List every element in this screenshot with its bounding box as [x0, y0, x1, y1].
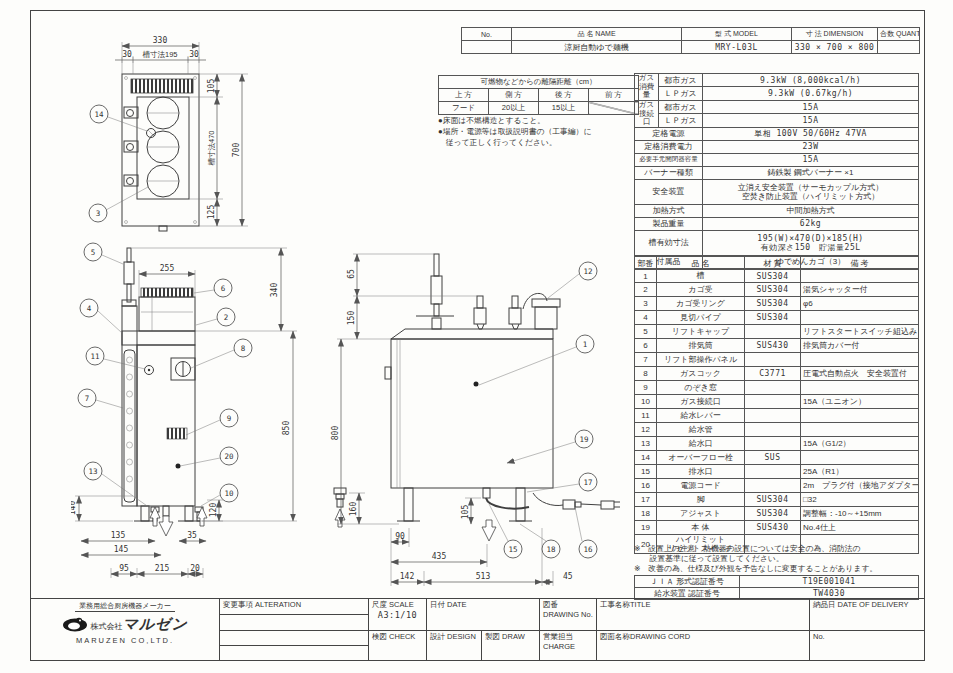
table-cell: 給水管: [657, 423, 745, 437]
parts-table: 部番 品 名 材 質 備 考 1槽SUS3042カゴ受SUS304湯気シャッター…: [634, 256, 919, 554]
svg-text:11: 11: [90, 352, 99, 361]
spec-gas-connection-label: ガス 接続口: [635, 100, 659, 127]
table-cell: オーバーフロー栓: [657, 451, 745, 465]
footnote-1: ※ 設置上の注意 熱機器の設置については安全の為、消防法の: [634, 544, 922, 554]
quantity-value: [878, 41, 920, 54]
header-model-label: 型 式 MODEL: [682, 28, 792, 41]
charge-label: 営業担当CHARGE: [543, 632, 575, 651]
clearance-val-rear: 15以上: [539, 102, 589, 115]
vent-grille: [131, 79, 193, 93]
table-row: 3カゴ受リングSUS304φ6: [635, 297, 919, 311]
drawing-cord-cell: 図面名称DRAWING CORD: [596, 630, 809, 661]
drawing-sheet-canvas: No. 品 名 NAME 型 式 MODEL 寸 法 DIMENSION 合数 …: [0, 0, 953, 673]
table-cell: ガスコック: [657, 367, 745, 381]
table-cell: φ6: [801, 297, 919, 311]
table-row: 19本 体SUS430No.4仕上: [635, 521, 919, 535]
company-tagline: 業務用総合厨房機器メーカー: [75, 600, 174, 612]
table-row: 6排気筒SUS430排気筒カバー付: [635, 339, 919, 353]
svg-text:12: 12: [583, 267, 592, 276]
dim-label: 95: [119, 564, 129, 573]
table-cell: [745, 409, 801, 423]
lift-control-panel: [124, 350, 135, 502]
balloon-17: 17: [527, 473, 597, 492]
dim-label: 513: [476, 572, 491, 581]
svg-text:7: 7: [85, 394, 90, 403]
dim-label: 105: [207, 79, 216, 94]
draw-label: 製図 DRAW: [485, 632, 525, 641]
table-cell: 脚: [657, 493, 745, 507]
lift-cap: [124, 262, 134, 284]
dim-label: 30: [189, 50, 199, 59]
table-row: 2カゴ受SUS304湯気シャッター付: [635, 283, 919, 297]
table-cell: 排水口: [657, 465, 745, 479]
jia-cert-number: T19E001041: [740, 576, 919, 588]
spec-lp-gas-label: ＬＰガス: [659, 87, 703, 100]
no-cell: No.: [809, 630, 924, 661]
parts-col-remark: 備 考: [801, 257, 919, 270]
sight-vent: [167, 428, 187, 439]
spec-power-consumption-value: 23W: [703, 140, 919, 153]
table-cell: SUS304: [745, 507, 801, 521]
svg-text:1: 1: [583, 340, 588, 349]
side-dimensions: 65 150 800 160 105 90 435 142 513 45: [331, 254, 573, 586]
faucet-1: [474, 296, 486, 329]
header-quantity-label: 合数 QUANTITY: [878, 28, 920, 41]
table-cell: [745, 465, 801, 479]
spec-power-value: 単相 100V 50/60Hz 47VA: [703, 127, 919, 140]
dim-label: 45: [563, 572, 573, 581]
date-label: 日付 DATE: [430, 600, 467, 609]
spec-weight-value: 62kg: [703, 217, 919, 230]
gas-arrow: [197, 507, 207, 526]
scale-label: 尺度 SCALE: [372, 600, 423, 610]
dim-label: 20: [190, 564, 200, 573]
table-cell: 給水レバー: [657, 409, 745, 423]
basket-handle-2: [124, 141, 138, 152]
clearance-table: 可燃物などからの離隔距離（cm） 上 方 側 方 後 方 前 方 フード 20以…: [438, 75, 639, 115]
header-dimension-label: 寸 法 DIMENSION: [792, 28, 878, 41]
no-label: No.: [813, 632, 825, 641]
cabinet-side: [391, 339, 553, 488]
spec-gas-city-value: 9.3kW (8,000kcal/h): [703, 74, 919, 87]
clearance-note-2: ●場所・電源等は取扱説明書の（工事編）に: [438, 126, 638, 137]
dim-label: 105: [461, 505, 470, 520]
table-cell: 15A（G1/2）: [801, 437, 919, 451]
basket-handle-1: [124, 107, 138, 118]
table-cell: □32: [801, 493, 919, 507]
counter-bevel: [391, 329, 553, 339]
table-row: 15排水口25A（R1）: [635, 465, 919, 479]
clearance-col-rear: 後 方: [539, 89, 589, 102]
spec-conn-city-label: 都市ガス: [659, 100, 703, 113]
counter-band: [122, 331, 195, 345]
table-cell: リフト部操作パネル: [657, 353, 745, 367]
table-cell: [745, 395, 801, 409]
draw-cell: 製図 DRAW: [481, 630, 539, 661]
drain-stub: [159, 226, 167, 231]
balloon-20: 20: [180, 447, 238, 466]
title-block: 業務用総合厨房機器メーカー 株式会社マルゼン MARUZEN CO,LTD. 変…: [31, 598, 924, 661]
tank-point: [474, 382, 479, 387]
table-row: 16電源コード2m プラグ付（接地アダプター付）: [635, 479, 919, 493]
spec-heating-label: 加熱方式: [635, 204, 703, 217]
upper-tank: [139, 297, 195, 331]
table-cell: 排気筒: [657, 339, 745, 353]
spec-conn-city-value: 15A: [703, 100, 919, 113]
alteration-label: 変更事項 ALTERATION: [223, 600, 301, 609]
table-cell: [745, 423, 801, 437]
company-prefix: 株式会社: [90, 622, 122, 631]
table-row: 12給水管: [635, 423, 919, 437]
table-row: 7リフト部操作パネル: [635, 353, 919, 367]
header-no-value: [462, 41, 512, 54]
svg-text:14: 14: [94, 110, 104, 119]
table-cell: [801, 270, 919, 283]
balloon-13: 13: [84, 462, 150, 508]
plan-view: 330 30 槽寸法195 30 105 槽寸法470 125 700 14 3: [71, 26, 271, 236]
dim-label: 435: [432, 552, 447, 561]
table-row: 17脚SUS304□32: [635, 493, 919, 507]
dim-label: 35: [187, 531, 197, 540]
parts-rows: 1槽SUS3042カゴ受SUS304湯気シャッター付3カゴ受リングSUS304φ…: [635, 270, 919, 554]
basket-receiver-comb: [141, 288, 193, 297]
spec-city-gas-label: 都市ガス: [659, 74, 703, 87]
table-cell: 給水口: [657, 437, 745, 451]
overflow-standpipe: [416, 254, 454, 329]
svg-text:13: 13: [88, 467, 97, 476]
gas-cock-knob: [171, 358, 195, 380]
tank-outline: [137, 97, 189, 199]
dim-label: 850: [282, 421, 291, 436]
maruzen-penguin-logo: [62, 616, 88, 632]
dim-label: 340: [270, 283, 279, 298]
outer-dimension: 330 × 700 × 800: [792, 41, 878, 54]
table-cell: SUS430: [745, 339, 801, 353]
table-cell: ガス接続口: [657, 395, 745, 409]
dim-label: 330: [153, 36, 168, 45]
table-cell: のぞき窓: [657, 381, 745, 395]
spec-weight-label: 製品重量: [635, 217, 703, 230]
table-cell: 湯気シャッター付: [801, 283, 919, 297]
svg-text:5: 5: [91, 248, 96, 257]
table-cell: 電源コード: [657, 479, 745, 493]
header-no-label: No.: [462, 28, 512, 41]
svg-text:9: 9: [227, 414, 232, 423]
side-view: 65 150 800 160 105 90 435 142 513 45: [301, 241, 646, 591]
company-brand: マルゼン: [122, 615, 187, 632]
plan-body: [122, 74, 199, 231]
table-cell: 排気筒カバー付: [801, 339, 919, 353]
table-cell: No.4仕上: [801, 521, 919, 535]
table-row: 4見切パイプSUS304: [635, 311, 919, 325]
svg-text:4: 4: [87, 304, 92, 313]
spec-safety-value: 立消え安全装置（サーモカップル方式） 空焚き防止装置（ハイリミット方式）: [703, 179, 919, 204]
power-cord: [533, 493, 620, 509]
front-view: 255 340 850 140 120 135 145 35 95 215: [71, 238, 306, 588]
table-cell: [745, 381, 801, 395]
project-title-cell: 工事名称TITLE: [596, 599, 809, 630]
svg-text:17: 17: [583, 478, 592, 487]
drain-pipe: [163, 506, 169, 516]
svg-text:8: 8: [241, 344, 246, 353]
table-cell: 15A（ユニオン）: [801, 395, 919, 409]
dim-label: 30: [122, 50, 132, 59]
clearance-col-top: 上 方: [439, 89, 489, 102]
table-cell: 25A（R1）: [801, 465, 919, 479]
spec-tank-value: 195(W)×470(D)×185(H) 有効深さ150 貯湯量25L: [703, 230, 919, 255]
panel-point: [176, 464, 181, 469]
table-row: 8ガスコックC3771圧電式自動点火 安全装置付: [635, 367, 919, 381]
svg-text:3: 3: [96, 209, 101, 218]
table-cell: [801, 381, 919, 395]
basket-handle-3: [124, 175, 138, 186]
table-cell: [745, 437, 801, 451]
installation-notes: ※ 設置上の注意 熱機器の設置については安全の為、消防法の 設置基準に従って設置…: [634, 544, 922, 574]
spec-heating-value: 中間加熱方式: [703, 204, 919, 217]
dim-label: 125: [207, 205, 216, 220]
company-name-en: MARUZEN CO,LTD.: [34, 636, 216, 645]
dim-label: 135: [111, 531, 126, 540]
dim-label: 145: [114, 545, 129, 554]
balloon-6: 6: [194, 279, 232, 297]
front-body: [122, 248, 207, 536]
design-label: 設計 DESIGN: [430, 632, 476, 641]
check-cell: 検図 CHECK: [368, 630, 426, 661]
svg-text:19: 19: [579, 435, 588, 444]
front-tab: [385, 367, 391, 379]
table-cell: リフトスタートスイッチ組込み: [801, 325, 919, 339]
balloon-5: 5: [84, 243, 123, 264]
dim-label: 215: [155, 564, 170, 573]
clearance-note-1: ●床面は不燃構造とすること。: [438, 115, 638, 126]
charge-cell: 営業担当CHARGE: [539, 630, 596, 661]
header-table: No. 品 名 NAME 型 式 MODEL 寸 法 DIMENSION 合数 …: [461, 27, 920, 54]
clearance-val-front: [589, 102, 639, 115]
spec-safety-label: 安全装置: [635, 179, 703, 204]
dim-label: 槽寸法470: [207, 130, 216, 165]
svg-text:10: 10: [224, 489, 234, 498]
table-cell: SUS304: [745, 311, 801, 325]
balloon-1: 1: [479, 335, 594, 385]
table-cell: [745, 325, 801, 339]
balloon-4: 4: [80, 299, 122, 333]
table-row: 5リフトキャップリフトスタートスイッチ組込み: [635, 325, 919, 339]
table-cell: [801, 353, 919, 367]
balloon-12: 12: [548, 262, 597, 298]
table-cell: 本 体: [657, 521, 745, 535]
table-cell: 見切パイプ: [657, 311, 745, 325]
dim-label: 700: [232, 143, 241, 158]
parts-col-material: 材 質: [745, 257, 801, 270]
delivery-cell: 納品日 DATE OF DELIVERY: [809, 599, 924, 630]
table-cell: [801, 451, 919, 465]
spec-burner-label: バーナー種類: [635, 166, 703, 179]
table-cell: アジャスト: [657, 507, 745, 521]
drawing-no-label: 図番 DRAWING No.: [543, 600, 593, 619]
table-cell: [745, 479, 801, 493]
svg-text:2: 2: [224, 313, 229, 322]
scale-cell: 尺度 SCALE A3:1/10: [368, 599, 426, 630]
svg-text:15: 15: [508, 545, 517, 554]
dim-label: 255: [160, 264, 175, 273]
plan-dimensions: 330 30 槽寸法195 30 105 槽寸法470 125 700: [115, 36, 248, 226]
product-name: 涼厨自動ゆで麺機: [512, 41, 682, 54]
spec-power-label: 定格電源: [635, 127, 703, 140]
dim-label: 65: [347, 269, 356, 279]
scale-value: A3:1/10: [372, 610, 423, 620]
balloon-10: 10: [201, 484, 238, 506]
alteration-cell: 変更事項 ALTERATION: [219, 599, 368, 661]
table-cell: 2m プラグ付（接地アダプター付）: [801, 479, 919, 493]
footnote-3: ※ 改善の為、仕様及び外観を予告なしに変更することがあります。: [634, 564, 922, 574]
table-row: 13給水口15A（G1/2）: [635, 437, 919, 451]
table-cell: SUS304: [745, 283, 801, 297]
parts-col-name: 品 名: [657, 257, 745, 270]
jia-cert-label: ＪＩＡ 形式認証番号: [635, 576, 740, 588]
drain-arrow: [159, 516, 173, 536]
clearance-box: 可燃物などからの離隔距離（cm） 上 方 側 方 後 方 前 方 フード 20以…: [438, 75, 638, 148]
date-cell: 日付 DATE: [426, 599, 539, 630]
table-row: 18アジャストSUS304調整幅：-10～+15mm: [635, 507, 919, 521]
spec-gas-consumption-label: ガス 消費量: [635, 74, 659, 101]
table-cell: [801, 311, 919, 325]
spec-table: ガス 消費量 都市ガス 9.3kW (8,000kcal/h) ＬＰガス 9.3…: [634, 73, 919, 269]
drawing-no-cell: 図番 DRAWING No.: [539, 599, 596, 630]
gas-connection-side: [334, 488, 346, 527]
svg-text:18: 18: [546, 545, 556, 554]
dim-label: 槽寸法195: [142, 50, 177, 59]
spec-gas-lp-value: 9.3kW (0.67kg/h): [703, 87, 919, 100]
project-title-label: 工事名称TITLE: [600, 600, 650, 609]
balloon-8: 8: [191, 339, 252, 368]
table-row: 14オーバーフロー栓SUS: [635, 451, 919, 465]
dim-label: 800: [331, 426, 340, 441]
table-row: 9のぞき窓: [635, 381, 919, 395]
header-name-label: 品 名 NAME: [512, 28, 682, 41]
svg-text:20: 20: [224, 452, 234, 461]
spec-breaker-value: 15A: [703, 153, 919, 166]
spec-power-consumption-label: 定格消費電力: [635, 140, 703, 153]
table-cell: C3771: [745, 367, 801, 381]
clearance-col-side: 側 方: [489, 89, 539, 102]
company-name: 株式会社マルゼン: [34, 615, 216, 634]
spec-breaker-label: 必要手元開閉器容量: [635, 153, 703, 166]
footnote-2: 設置基準に従って設置してください。: [634, 554, 922, 564]
svg-text:16: 16: [583, 545, 593, 554]
spec-conn-lp-value: 15A: [703, 114, 919, 127]
table-cell: SUS: [745, 451, 801, 465]
dim-label: 150: [347, 311, 356, 326]
dim-label: 120: [209, 503, 218, 518]
clearance-val-side: 20以上: [489, 102, 539, 115]
clearance-note-3: 従って正しく行ってください。: [438, 137, 638, 148]
table-cell: リフトキャップ: [657, 325, 745, 339]
faucet-2: [509, 296, 521, 329]
spec-burner-value: 鋳鉄製 鋼式バーナー ×1: [703, 166, 919, 179]
clearance-col-front: 前 方: [589, 89, 639, 102]
dim-label: 140: [71, 501, 77, 516]
drain-side: [482, 488, 529, 541]
table-cell: [801, 409, 919, 423]
cabinet: [137, 345, 195, 506]
drawing-sheet-frame: No. 品 名 NAME 型 式 MODEL 寸 法 DIMENSION 合数 …: [30, 10, 925, 661]
balloon-9: 9: [186, 409, 238, 435]
balloon-3: 3: [89, 187, 148, 222]
company-block: 業務用総合厨房機器メーカー 株式会社マルゼン MARUZEN CO,LTD.: [31, 599, 219, 661]
design-cell: 設計 DESIGN: [426, 630, 481, 661]
table-row: 10ガス接続口15A（ユニオン）: [635, 395, 919, 409]
balloon-18: 18: [520, 524, 560, 558]
table-cell: SUS304: [745, 493, 801, 507]
table-cell: 調整幅：-10～+15mm: [801, 507, 919, 521]
balloon-2: 2: [196, 308, 235, 326]
certification-table: ＪＩＡ 形式認証番号 T19E001041 給水装置 認証番号 TW4030: [634, 575, 919, 600]
table-cell: [801, 423, 919, 437]
dim-label: 160: [349, 502, 358, 517]
dim-label: 90: [395, 532, 405, 541]
balloon-11: 11: [86, 347, 145, 369]
table-cell: [745, 353, 801, 367]
balloon-19: 19: [507, 430, 593, 463]
check-label: 検図 CHECK: [372, 632, 415, 641]
table-cell: SUS304: [745, 270, 801, 283]
balloon-16: 16: [575, 507, 597, 558]
clearance-val-top: フード: [439, 102, 489, 115]
table-cell: カゴ受: [657, 283, 745, 297]
table-row: 11給水レバー: [635, 409, 919, 423]
lift-rod: [127, 248, 131, 262]
table-cell: 圧電式自動点火 安全装置付: [801, 367, 919, 381]
svg-text:6: 6: [221, 284, 226, 293]
table-cell: SUS304: [745, 297, 801, 311]
spec-conn-lp-label: ＬＰガス: [659, 114, 703, 127]
delivery-label: 納品日 DATE OF DELIVERY: [813, 600, 909, 609]
model-number: MRY-L03L: [682, 41, 792, 54]
table-cell: 槽: [657, 270, 745, 283]
water-supply-pipe: [523, 293, 560, 329]
drawing-cord-label: 図面名称DRAWING CORD: [600, 632, 690, 641]
table-cell: カゴ受リング: [657, 297, 745, 311]
balloon-7: 7: [78, 389, 123, 408]
table-cell: SUS430: [745, 521, 801, 535]
clearance-title: 可燃物などからの離隔距離（cm）: [439, 76, 639, 89]
dim-label: 142: [400, 572, 415, 581]
table-row: 1槽SUS304: [635, 270, 919, 283]
